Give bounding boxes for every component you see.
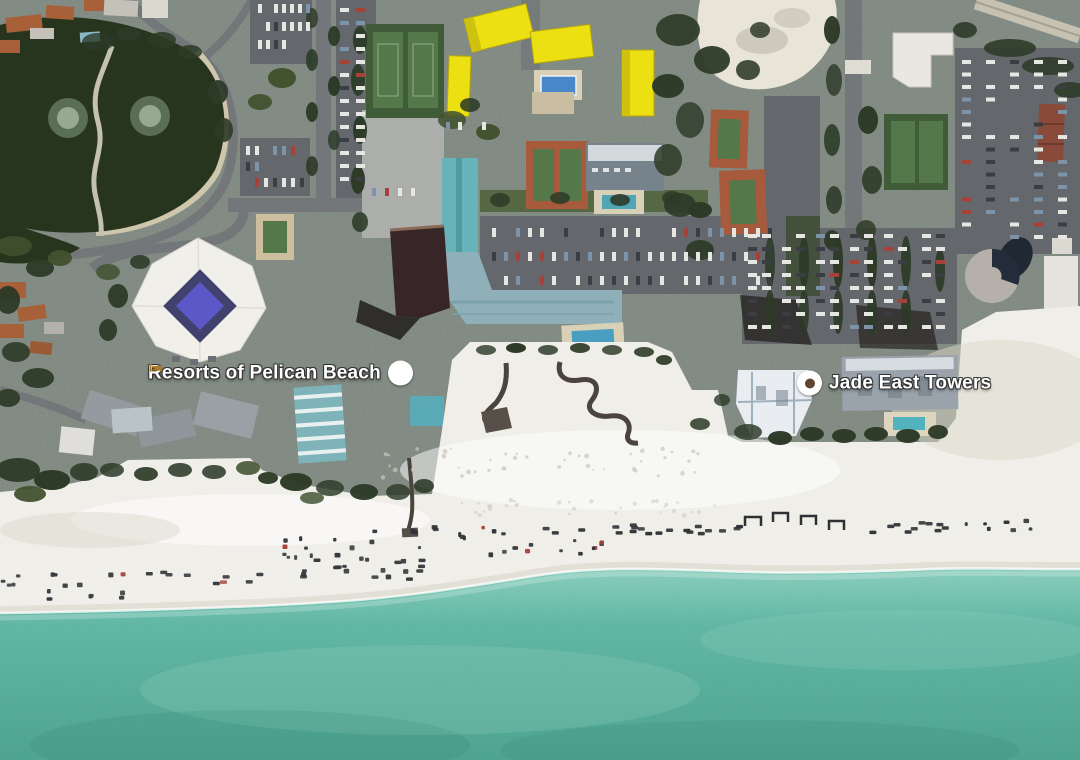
satellite-map[interactable]: Resorts of Pelican Beach Jade East Tower… (0, 0, 1080, 760)
poi-dot-icon[interactable] (797, 371, 822, 396)
map-label-jade-east-towers[interactable]: Jade East Towers (797, 371, 991, 396)
map-label-resorts-of-pelican-beach[interactable]: Resorts of Pelican Beach (148, 361, 413, 386)
striped-building (293, 384, 346, 463)
map-label-text: Resorts of Pelican Beach (148, 362, 381, 384)
lodging-icon[interactable] (388, 361, 413, 386)
tennis-court-east (884, 114, 948, 190)
map-label-text: Jade East Towers (829, 372, 991, 394)
